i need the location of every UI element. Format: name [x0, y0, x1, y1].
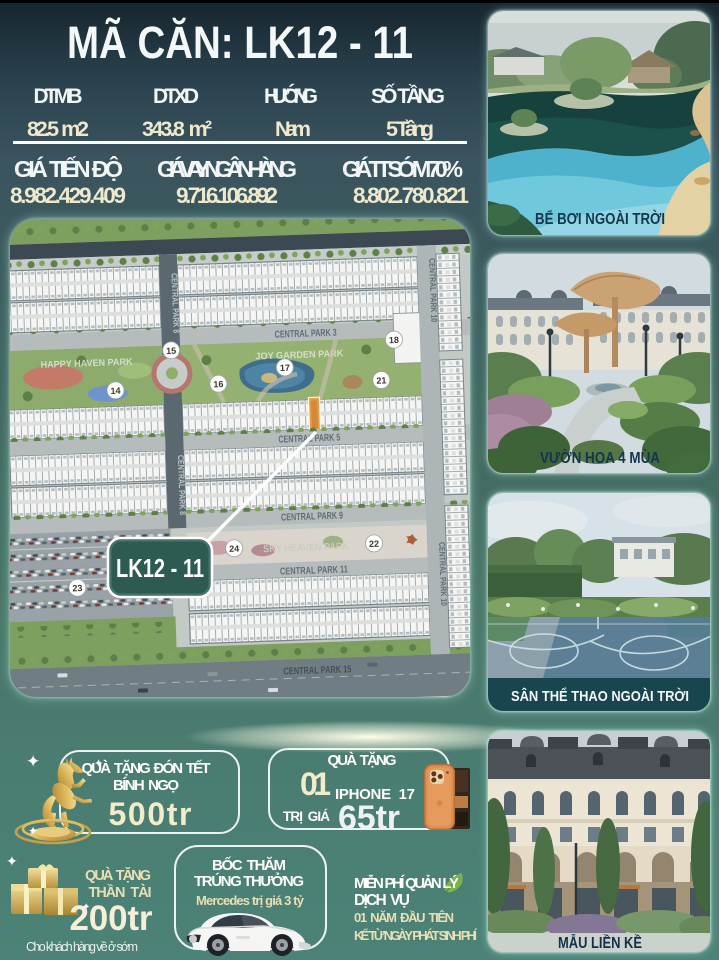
svg-text:9.716.106.892: 9.716.106.892: [176, 183, 278, 208]
svg-text:MIỄN PHÍ QUẢN LÝ: MIỄN PHÍ QUẢN LÝ: [354, 874, 459, 892]
svg-text:Cho khách hàng về ở sớm: Cho khách hàng về ở sớm: [26, 940, 138, 954]
svg-text:GIÁ TT SỚM 70%: GIÁ TT SỚM 70%: [342, 155, 463, 182]
svg-text:8.802.780.821: 8.802.780.821: [353, 183, 469, 208]
svg-text:8.982.429.409: 8.982.429.409: [10, 183, 126, 208]
svg-text:KỂ TỪ NGÀY PHÁT SINH PHÍ: KỂ TỪ NGÀY PHÁT SINH PHÍ: [354, 928, 477, 943]
svg-text:BỐC THĂM: BỐC THĂM: [212, 856, 286, 874]
svg-text:HƯỚNG: HƯỚNG: [264, 84, 318, 108]
svg-text:GIÁ TIẾN ĐỘ: GIÁ TIẾN ĐỘ: [14, 155, 123, 182]
svg-text:GIÁ VAY NGÂN HÀNG: GIÁ VAY NGÂN HÀNG: [157, 155, 297, 182]
svg-text:TRÚNG THƯỞNG: TRÚNG THƯỞNG: [194, 872, 304, 890]
svg-text:DỊCH VỤ: DỊCH VỤ: [354, 892, 410, 909]
svg-text:DTXD: DTXD: [153, 85, 199, 108]
svg-text:QUÀ TẶNG ĐÓN TẾT: QUÀ TẶNG ĐÓN TẾT: [82, 759, 211, 777]
svg-text:TRỊ GIÁ: TRỊ GIÁ: [283, 809, 330, 824]
svg-text:Mercedes trị giá 3 tỷ: Mercedes trị giá 3 tỷ: [196, 893, 305, 908]
svg-text:QUÀ TẶNG: QUÀ TẶNG: [85, 867, 151, 884]
svg-text:343.8 m²: 343.8 m²: [142, 117, 212, 141]
svg-text:01: 01: [300, 766, 331, 802]
svg-text:MÃ CĂN: LK12 - 11: MÃ CĂN: LK12 - 11: [67, 17, 413, 68]
svg-text:QUÀ TẶNG: QUÀ TẶNG: [328, 752, 397, 769]
svg-text:Nam: Nam: [275, 117, 311, 141]
svg-text:BÍNH NGỌ: BÍNH NGỌ: [113, 777, 179, 794]
svg-text:5 Tầng: 5 Tầng: [386, 117, 434, 141]
svg-text:DTMB: DTMB: [34, 85, 83, 108]
svg-text:65tr: 65tr: [338, 799, 400, 837]
svg-text:82.5 m2: 82.5 m2: [27, 117, 89, 141]
svg-text:01 NĂM ĐẦU TIÊN: 01 NĂM ĐẦU TIÊN: [354, 910, 454, 925]
svg-text:200tr: 200tr: [70, 899, 153, 938]
svg-text:500tr: 500tr: [109, 796, 192, 832]
svg-text:SỐ TẦNG: SỐ TẦNG: [371, 84, 445, 108]
